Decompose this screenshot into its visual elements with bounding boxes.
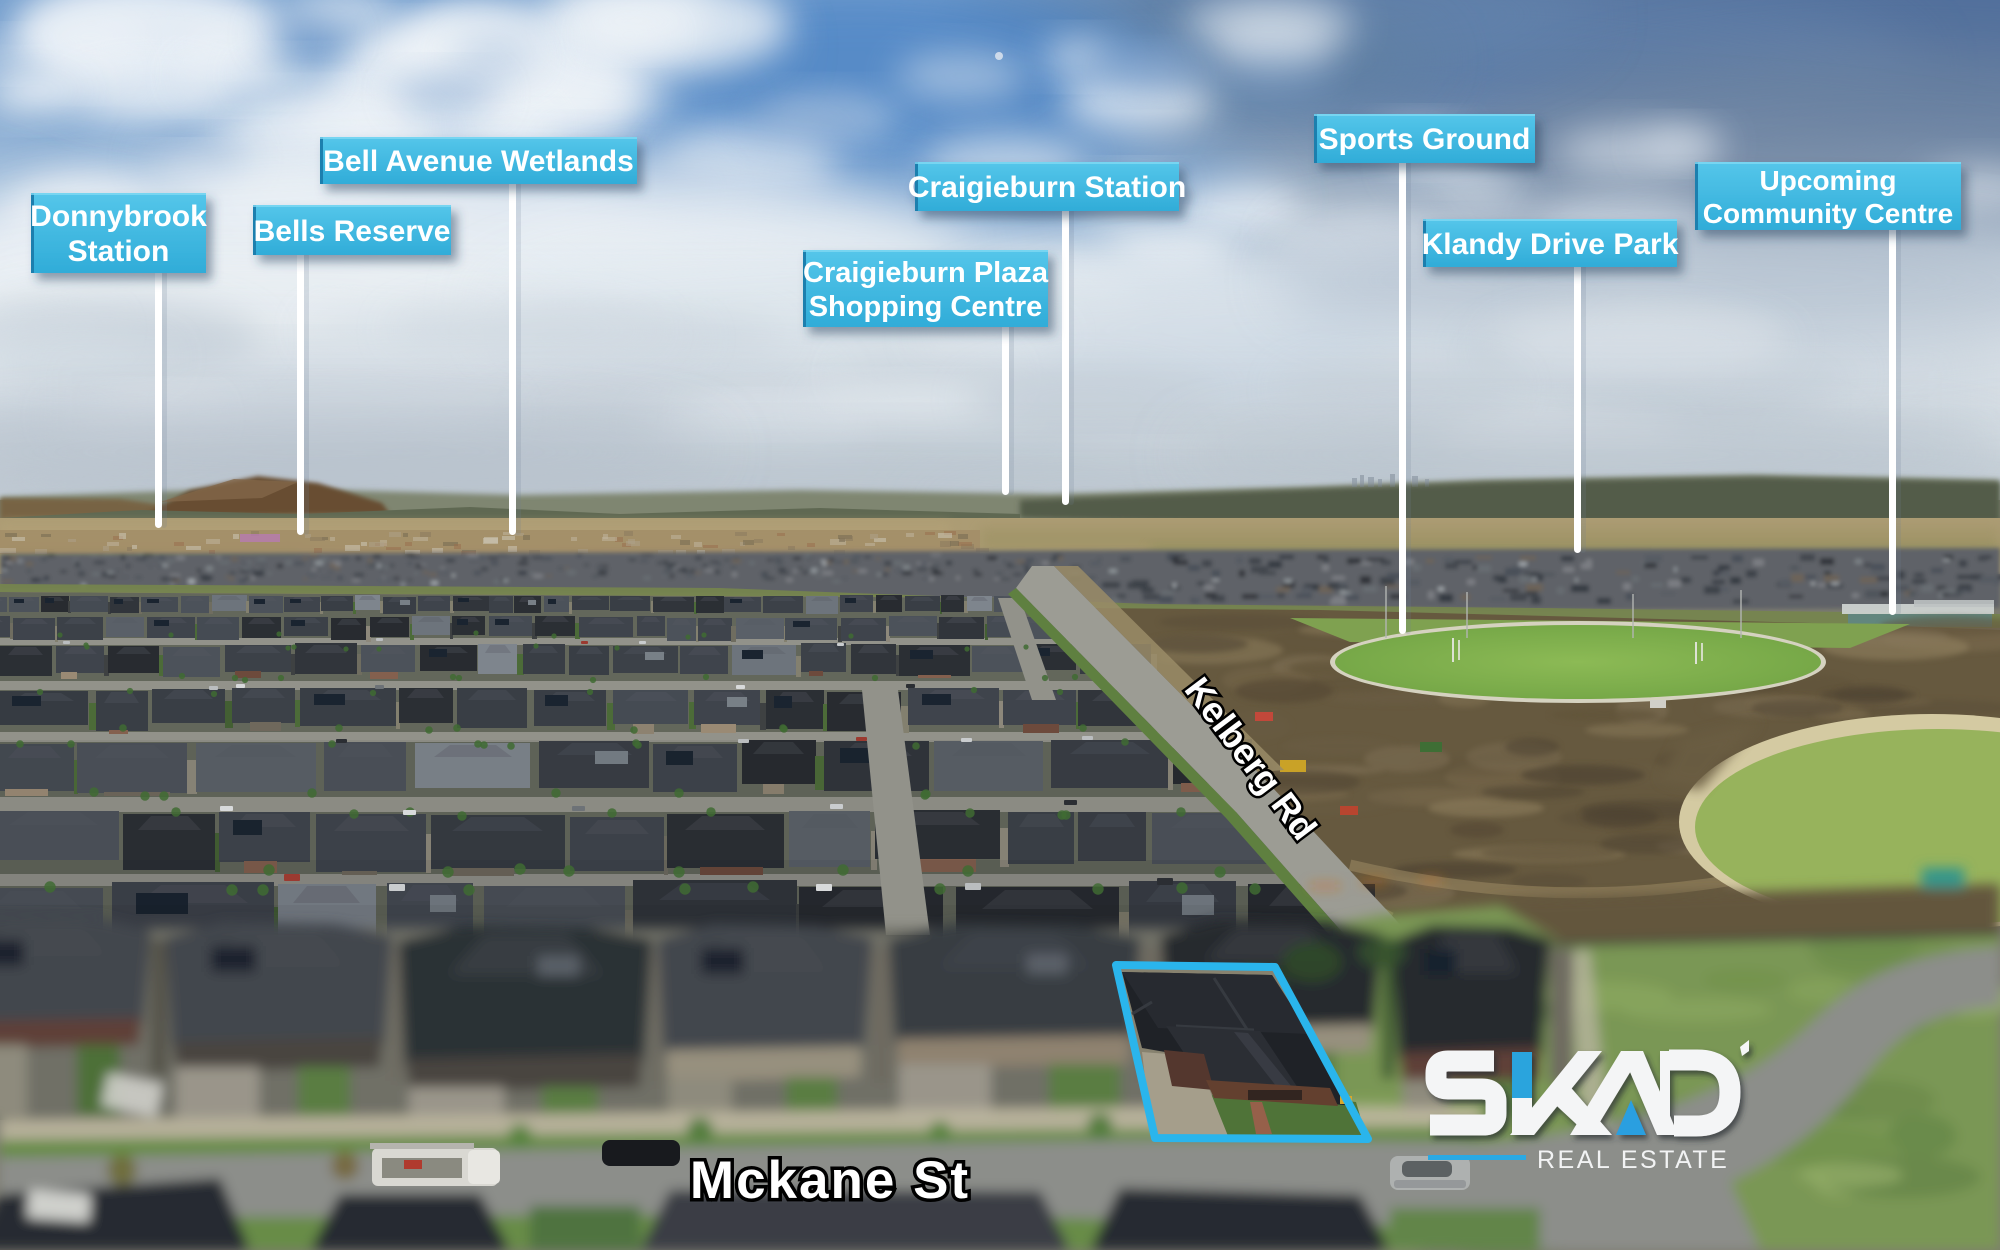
svg-text:Mckane St: Mckane St — [690, 1151, 970, 1210]
svg-text:Sports Ground: Sports Ground — [1319, 123, 1531, 156]
svg-text:Shopping Centre: Shopping Centre — [809, 291, 1043, 323]
svg-text:Community Centre: Community Centre — [1703, 198, 1953, 229]
svg-text:Bells Reserve: Bells Reserve — [254, 215, 451, 248]
svg-text:Craigieburn Station: Craigieburn Station — [908, 171, 1186, 204]
svg-text:Upcoming: Upcoming — [1760, 165, 1897, 196]
svg-text:Bell Avenue Wetlands: Bell Avenue Wetlands — [323, 145, 634, 178]
svg-text:Klandy Drive Park: Klandy Drive Park — [1422, 228, 1679, 261]
svg-text:Craigieburn Plaza: Craigieburn Plaza — [803, 257, 1049, 289]
svg-text:Donnybrook: Donnybrook — [30, 200, 207, 233]
svg-text:REAL ESTATE: REAL ESTATE — [1537, 1146, 1729, 1174]
svg-text:Station: Station — [68, 235, 170, 268]
